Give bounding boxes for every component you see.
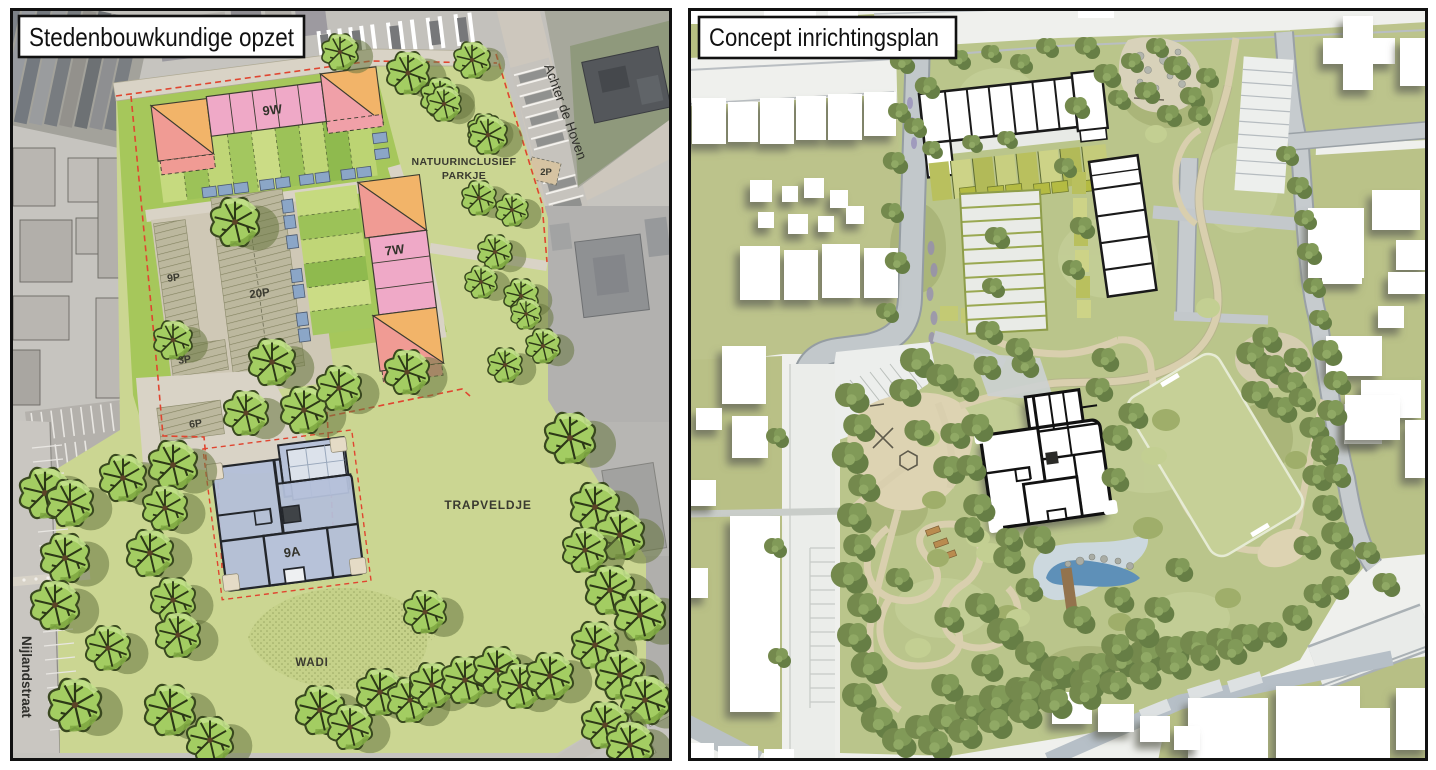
svg-text:6P: 6P (188, 417, 202, 431)
svg-text:TRAPVELDJE: TRAPVELDJE (444, 498, 531, 512)
svg-text:7W: 7W (384, 241, 406, 258)
svg-text:PARKJE: PARKJE (442, 170, 486, 182)
svg-text:2P: 2P (540, 167, 552, 178)
svg-text:9A: 9A (283, 543, 302, 560)
svg-text:WADI: WADI (295, 657, 328, 669)
svg-text:9P: 9P (166, 271, 180, 285)
svg-text:Stedenbouwkundige opzet: Stedenbouwkundige opzet (29, 22, 295, 52)
svg-text:Nijlandstraat: Nijlandstraat (19, 636, 34, 718)
svg-text:9W: 9W (262, 101, 284, 118)
svg-text:3P: 3P (177, 353, 191, 367)
svg-text:Concept inrichtingsplan: Concept inrichtingsplan (709, 24, 939, 52)
svg-text:NATUURINCLUSIEF: NATUURINCLUSIEF (412, 156, 517, 168)
